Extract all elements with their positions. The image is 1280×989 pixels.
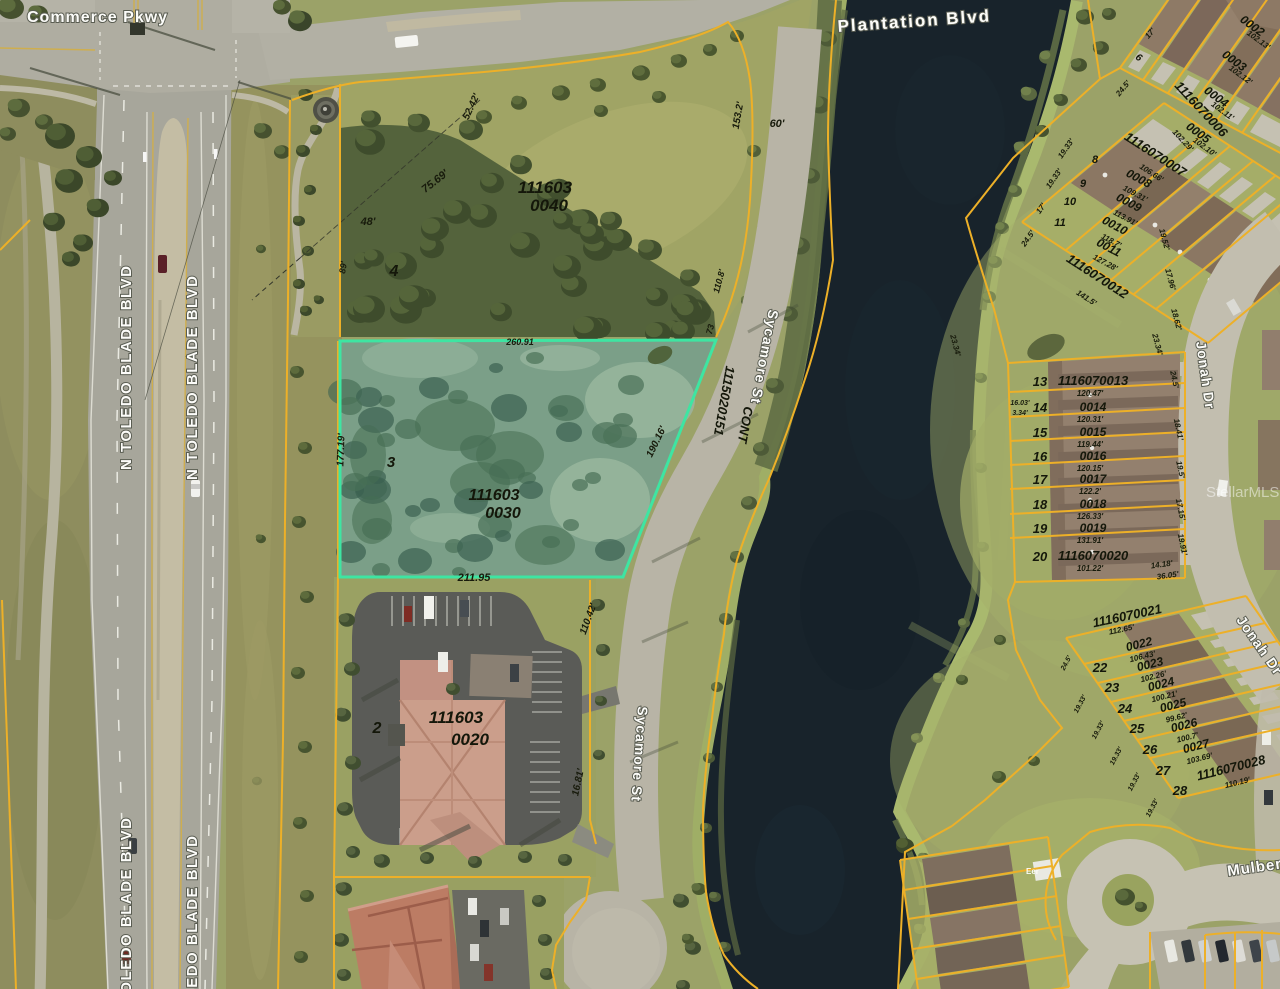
svg-text:26: 26 xyxy=(1142,742,1158,757)
svg-text:101.22': 101.22' xyxy=(1077,564,1104,573)
svg-text:177.19': 177.19' xyxy=(335,433,347,467)
svg-text:48': 48' xyxy=(360,216,376,228)
svg-text:15: 15 xyxy=(1033,425,1048,440)
svg-text:2: 2 xyxy=(372,720,382,737)
svg-text:16.03': 16.03' xyxy=(1010,400,1030,407)
svg-text:14: 14 xyxy=(1033,400,1048,415)
svg-text:0015: 0015 xyxy=(1080,425,1107,439)
svg-text:23: 23 xyxy=(1104,680,1120,695)
svg-text:9: 9 xyxy=(1080,178,1087,190)
svg-text:111603: 111603 xyxy=(468,487,519,504)
svg-text:11: 11 xyxy=(1054,217,1065,229)
svg-text:111603: 111603 xyxy=(518,178,573,197)
svg-text:3: 3 xyxy=(387,454,396,471)
svg-text:211.95: 211.95 xyxy=(457,572,492,584)
svg-text:126.33': 126.33' xyxy=(1077,512,1104,521)
svg-text:0030: 0030 xyxy=(485,505,521,522)
svg-text:119.44': 119.44' xyxy=(1077,440,1104,449)
svg-text:260.91: 260.91 xyxy=(505,337,534,347)
svg-text:0017: 0017 xyxy=(1080,472,1108,486)
svg-text:Commerce Pkwy: Commerce Pkwy xyxy=(27,9,168,26)
svg-text:122.2': 122.2' xyxy=(1079,487,1102,496)
svg-text:0016: 0016 xyxy=(1080,449,1107,463)
svg-text:111603: 111603 xyxy=(429,708,484,727)
svg-text:28: 28 xyxy=(1172,783,1188,798)
svg-text:0040: 0040 xyxy=(530,196,568,215)
svg-text:25: 25 xyxy=(1129,721,1145,736)
svg-text:N TOLEDO BLADE BLVD: N TOLEDO BLADE BLVD xyxy=(118,817,135,989)
svg-text:0019: 0019 xyxy=(1080,521,1107,535)
svg-text:17: 17 xyxy=(1033,472,1048,487)
svg-text:16: 16 xyxy=(1033,449,1048,464)
svg-text:60': 60' xyxy=(770,118,785,130)
svg-text:Eer: Eer xyxy=(1026,867,1039,876)
svg-text:0020: 0020 xyxy=(451,730,489,749)
svg-text:18: 18 xyxy=(1033,497,1048,512)
svg-text:1116070013: 1116070013 xyxy=(1058,373,1129,388)
svg-text:10: 10 xyxy=(1064,196,1077,208)
svg-text:N TOLEDO BLADE BLVD: N TOLEDO BLADE BLVD xyxy=(184,835,201,989)
svg-text:8: 8 xyxy=(1092,154,1099,166)
svg-text:3.34': 3.34' xyxy=(1012,410,1028,417)
svg-text:27: 27 xyxy=(1155,763,1171,778)
svg-text:StellarMLS: StellarMLS xyxy=(1206,484,1279,501)
svg-text:120.31': 120.31' xyxy=(1077,415,1104,424)
svg-text:13: 13 xyxy=(1033,374,1048,389)
svg-text:22: 22 xyxy=(1092,660,1108,675)
svg-text:131.91': 131.91' xyxy=(1077,536,1104,545)
svg-text:0014: 0014 xyxy=(1080,400,1107,414)
svg-text:24: 24 xyxy=(1117,701,1133,716)
svg-text:0018: 0018 xyxy=(1080,497,1107,511)
svg-text:4: 4 xyxy=(389,263,399,280)
svg-text:1116070020: 1116070020 xyxy=(1058,548,1129,563)
svg-text:120.47': 120.47' xyxy=(1077,389,1104,398)
svg-text:N TOLEDO BLADE BLVD: N TOLEDO BLADE BLVD xyxy=(184,275,201,480)
svg-text:19: 19 xyxy=(1033,521,1048,536)
svg-text:20: 20 xyxy=(1032,549,1048,564)
svg-text:N TOLEDO BLADE BLVD: N TOLEDO BLADE BLVD xyxy=(118,265,135,470)
